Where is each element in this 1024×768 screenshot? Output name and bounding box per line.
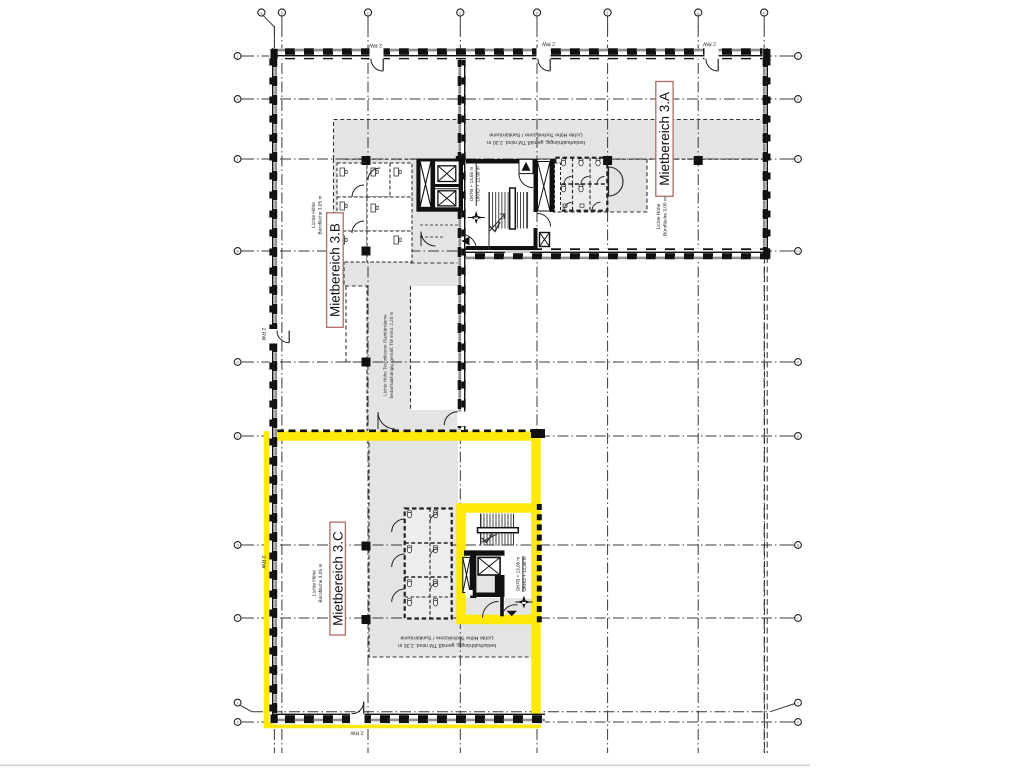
svg-text:bedarfsabhängig, gemäß TM mind: bedarfsabhängig, gemäß TM mind. 2,20 m bbox=[389, 311, 394, 398]
svg-text:h: h bbox=[763, 10, 765, 15]
svg-text:d: d bbox=[459, 10, 461, 15]
svg-text:q: q bbox=[797, 543, 799, 548]
svg-text:s: s bbox=[797, 720, 799, 725]
svg-text:c: c bbox=[367, 10, 369, 15]
svg-text:n: n bbox=[236, 360, 238, 365]
svg-text:Mietbereich 3.A: Mietbereich 3.A bbox=[657, 92, 672, 186]
svg-text:n: n bbox=[797, 360, 799, 365]
svg-text:Mietbereich 3.C: Mietbereich 3.C bbox=[330, 531, 345, 626]
svg-text:2 RW: 2 RW bbox=[260, 556, 266, 569]
svg-text:2 RW: 2 RW bbox=[369, 42, 382, 48]
svg-text:l: l bbox=[798, 157, 799, 162]
svg-text:j: j bbox=[236, 54, 238, 59]
svg-text:s: s bbox=[237, 720, 239, 725]
svg-text:OKFB + 13,65 m: OKFB + 13,65 m bbox=[469, 167, 474, 202]
svg-text:Lichte Höhe: Lichte Höhe bbox=[312, 570, 318, 596]
svg-text:Bürofläche 3,05 m: Bürofläche 3,05 m bbox=[663, 197, 669, 236]
svg-text:2 RW: 2 RW bbox=[350, 730, 363, 736]
svg-text:bedarfsabhängig, gemäß TM mind: bedarfsabhängig, gemäß TM mind. 2,35 m bbox=[398, 642, 496, 648]
svg-text:k: k bbox=[237, 97, 239, 102]
svg-text:Bürofläche 3,05 m: Bürofläche 3,05 m bbox=[318, 196, 324, 235]
svg-text:2 RW: 2 RW bbox=[542, 41, 555, 47]
svg-text:k: k bbox=[797, 97, 799, 102]
svg-text:bedarfsabhängig, gemäß TM mind: bedarfsabhängig, gemäß TM mind. 2,30 m bbox=[487, 139, 585, 145]
svg-text:2 RW: 2 RW bbox=[260, 328, 266, 341]
svg-text:Lichte Höhe Technikzone / Sani: Lichte Höhe Technikzone / Sanitärräume bbox=[489, 132, 582, 138]
svg-text:q: q bbox=[236, 543, 238, 548]
svg-text:Lichte Höhe Technikzone / Sani: Lichte Höhe Technikzone / Sanitärräume bbox=[400, 635, 493, 641]
svg-text:Lichte Höhe Technikzone /Sanit: Lichte Höhe Technikzone /Sanitärräume bbox=[383, 314, 388, 396]
svg-text:j: j bbox=[797, 54, 799, 59]
svg-text:l: l bbox=[237, 157, 238, 162]
svg-text:OKFB + 13,06 m: OKFB + 13,06 m bbox=[516, 557, 521, 592]
svg-text:2 RW: 2 RW bbox=[703, 41, 716, 47]
svg-text:g: g bbox=[697, 10, 699, 15]
svg-text:Bürofläche 3,05 m: Bürofläche 3,05 m bbox=[318, 564, 324, 603]
svg-text:Mietbereich 3.B: Mietbereich 3.B bbox=[328, 223, 343, 317]
svg-text:Lichte Höhe: Lichte Höhe bbox=[656, 203, 662, 229]
svg-text:Lichte Höhe: Lichte Höhe bbox=[311, 202, 317, 228]
